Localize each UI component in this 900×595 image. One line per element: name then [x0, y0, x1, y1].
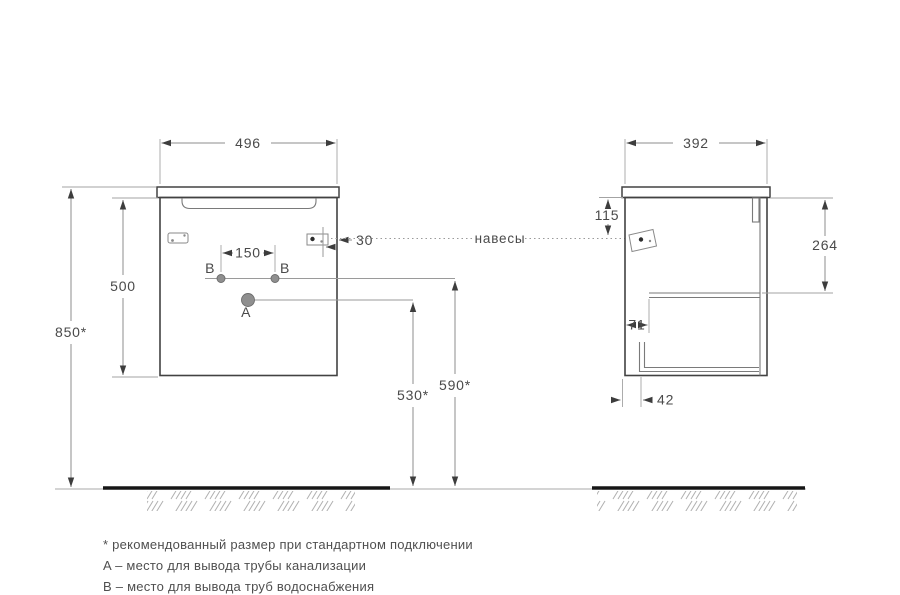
bottom-panel — [640, 342, 760, 372]
dim-shelf-drop: 264 — [762, 198, 838, 293]
side-view: 392 115 264 71 — [595, 135, 838, 408]
front-cabinet-body — [160, 198, 337, 376]
door-top-detail — [753, 198, 760, 222]
hangers-connector: навесы — [331, 231, 628, 246]
hangers-label: навесы — [475, 231, 526, 246]
dim-holes-spacing: 150 — [221, 245, 275, 273]
depth-value: 392 — [683, 135, 709, 151]
hanger-bracket-left — [168, 233, 188, 243]
floor — [55, 488, 806, 511]
footnote-water-supply: B – место для вывода труб водоснабжения — [103, 579, 374, 594]
side-hanger-bracket — [629, 230, 657, 252]
water-supply-hole-left — [217, 275, 225, 283]
footnote-drain: A – место для вывода трубы канализации — [103, 558, 366, 573]
dim-hanger-drop: 115 — [595, 198, 623, 236]
holes-spacing-value: 150 — [235, 245, 261, 261]
dim-hanger-offset: 30 — [326, 232, 373, 248]
drawing-svg: 496 500 850* B B A — [0, 0, 900, 595]
drain-height-value: 530* — [397, 387, 429, 403]
dim-cabinet-height: 500 — [110, 198, 158, 377]
dim-supply-height: 590* — [439, 281, 471, 486]
side-cabinet-body — [625, 198, 767, 376]
front-view: 496 500 850* B B A — [55, 135, 471, 487]
cabinet-height-value: 500 — [110, 278, 136, 294]
shelf-drop-value: 264 — [812, 237, 838, 253]
total-height-value: 850* — [55, 324, 87, 340]
front-countertop — [157, 187, 339, 198]
shelf — [649, 293, 760, 298]
water-supply-hole-right — [271, 275, 279, 283]
front-width-value: 496 — [235, 135, 261, 151]
supply-height-value: 590* — [439, 377, 471, 393]
bottom-inset-value: 42 — [657, 392, 674, 408]
shelf-inset-value: 71 — [628, 317, 645, 333]
label-a: A — [241, 304, 251, 320]
vanity-dimensions-drawing: 496 500 850* B B A — [0, 0, 900, 595]
hanger-drop-value: 115 — [595, 207, 620, 223]
handle-recess — [182, 198, 316, 209]
label-b-right: B — [280, 260, 290, 276]
dim-shelf-inset: 71 — [627, 299, 650, 333]
floor-hatch-left — [147, 491, 355, 511]
dim-bottom-inset: 42 — [611, 377, 674, 408]
dim-drain-height: 530* — [397, 303, 429, 487]
hanger-bracket-right — [307, 227, 328, 257]
dim-total-height: 850* — [55, 187, 156, 487]
floor-hatch-right — [597, 491, 797, 511]
dim-front-width: 496 — [160, 135, 337, 184]
footnotes: * рекомендованный размер при стандартном… — [103, 537, 473, 594]
connection-points: B B A — [205, 260, 455, 320]
side-countertop — [622, 187, 770, 198]
hanger-offset-value: 30 — [356, 232, 373, 248]
dim-depth: 392 — [625, 135, 767, 184]
label-b-left: B — [205, 260, 215, 276]
footnote-recommended-size: * рекомендованный размер при стандартном… — [103, 537, 473, 552]
